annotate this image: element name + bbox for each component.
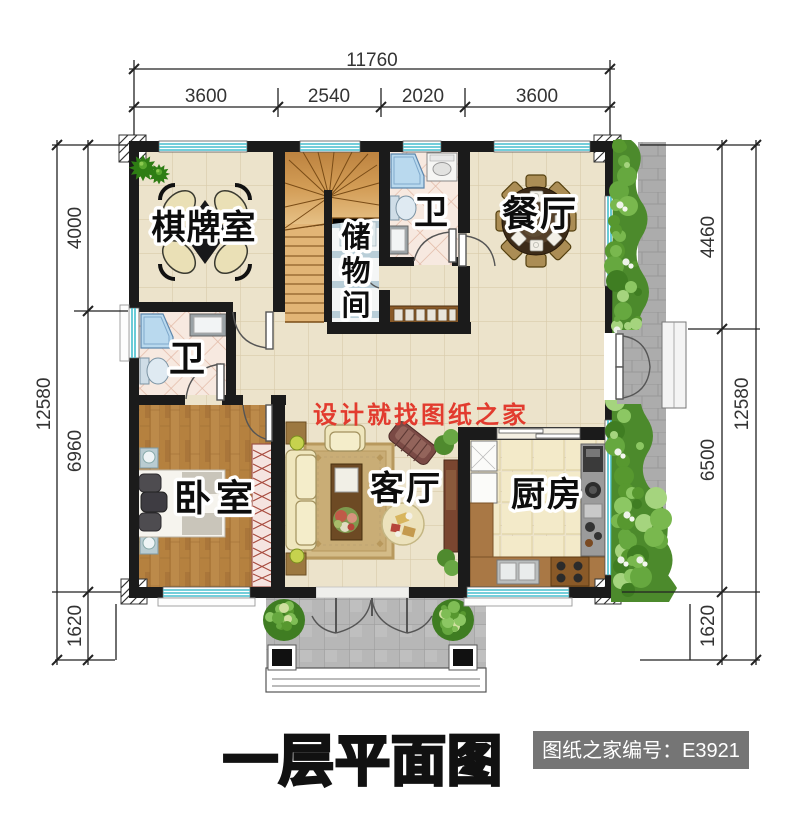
svg-text:1620: 1620 [698, 605, 719, 647]
svg-text:4000: 4000 [65, 207, 86, 249]
svg-text:棋牌室: 棋牌室 [152, 208, 257, 247]
svg-text:卧室: 卧室 [174, 477, 258, 519]
svg-text:12580: 12580 [732, 378, 753, 431]
svg-text:厨房: 厨房 [511, 476, 583, 514]
svg-text:物: 物 [341, 255, 370, 288]
svg-text:6960: 6960 [65, 430, 86, 472]
svg-text:图纸之家编号：E3921: 图纸之家编号：E3921 [542, 739, 740, 762]
svg-text:储: 储 [341, 221, 370, 254]
svg-text:餐厅: 餐厅 [502, 193, 578, 234]
svg-text:3600: 3600 [185, 86, 227, 107]
svg-text:1620: 1620 [65, 605, 86, 647]
svg-text:客厅: 客厅 [370, 469, 442, 508]
svg-text:12580: 12580 [34, 378, 55, 431]
svg-text:2020: 2020 [402, 86, 444, 107]
svg-text:3600: 3600 [516, 86, 558, 107]
svg-text:2540: 2540 [308, 86, 350, 107]
svg-text:一层平面图: 一层平面图 [223, 730, 503, 792]
svg-text:设计就找图纸之家: 设计就找图纸之家 [313, 401, 529, 429]
svg-text:6500: 6500 [698, 439, 719, 481]
svg-text:4460: 4460 [698, 216, 719, 258]
svg-text:卫: 卫 [414, 194, 448, 232]
svg-text:间: 间 [341, 289, 370, 322]
svg-text:11760: 11760 [346, 50, 397, 71]
svg-text:卫: 卫 [169, 338, 205, 379]
